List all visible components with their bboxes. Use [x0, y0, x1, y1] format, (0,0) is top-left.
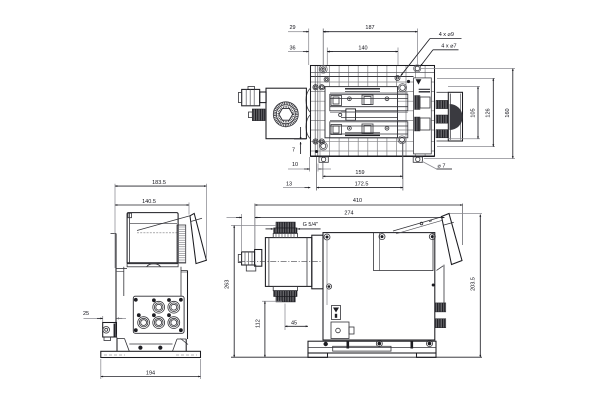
svg-text:13: 13 — [286, 182, 292, 188]
svg-text:29: 29 — [289, 25, 295, 31]
svg-text:10: 10 — [292, 162, 298, 168]
svg-text:140: 140 — [358, 46, 367, 52]
svg-text:274: 274 — [344, 211, 353, 217]
svg-text:410: 410 — [353, 198, 362, 204]
svg-text:G 5/4": G 5/4" — [303, 222, 318, 228]
svg-text:105: 105 — [470, 108, 476, 117]
svg-text:112: 112 — [255, 319, 261, 328]
svg-text:194: 194 — [146, 371, 155, 377]
svg-text:25: 25 — [83, 311, 89, 317]
svg-text:4 x ⌀7: 4 x ⌀7 — [441, 44, 456, 50]
svg-text:203.5: 203.5 — [470, 277, 476, 291]
svg-text:⌀ 7: ⌀ 7 — [438, 163, 446, 169]
svg-text:172.5: 172.5 — [355, 182, 369, 188]
svg-text:7: 7 — [292, 148, 295, 154]
svg-text:159: 159 — [355, 170, 364, 176]
svg-text:126: 126 — [486, 108, 492, 117]
svg-text:36: 36 — [289, 46, 295, 52]
svg-text:183.5: 183.5 — [152, 180, 166, 186]
svg-text:160: 160 — [505, 108, 511, 117]
svg-text:187: 187 — [365, 25, 374, 31]
svg-text:140.5: 140.5 — [142, 199, 156, 205]
svg-text:45: 45 — [291, 320, 297, 326]
svg-text:4 x ⌀9: 4 x ⌀9 — [439, 32, 454, 38]
svg-text:263: 263 — [225, 280, 231, 289]
